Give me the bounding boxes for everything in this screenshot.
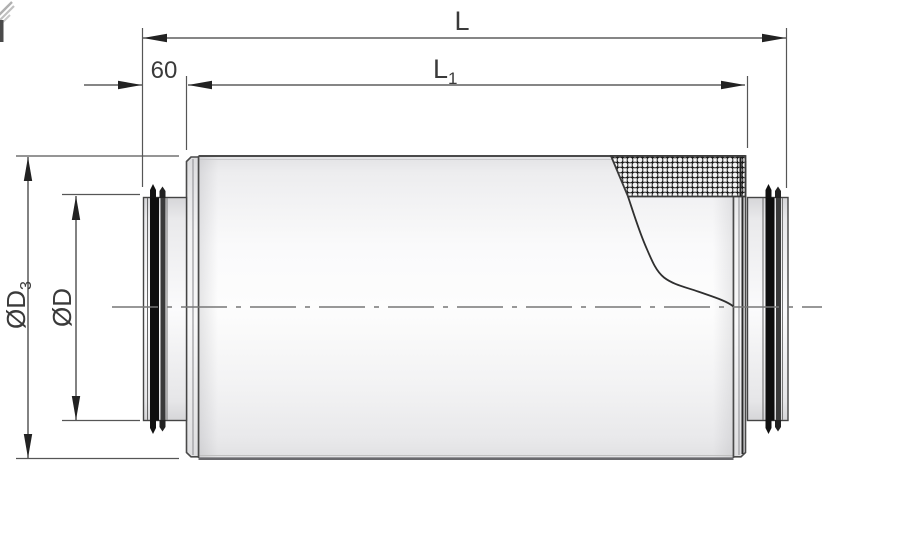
silencer-technical-drawing: L L1 60 ØD3 ØD bbox=[0, 0, 900, 536]
dimension-duct-diameter: ØD bbox=[47, 196, 80, 420]
label-outer-diameter: ØD3 bbox=[1, 281, 35, 329]
arrowhead-left-icon bbox=[188, 81, 212, 89]
label-spigot-length: 60 bbox=[151, 57, 178, 84]
right-seal-lip-bottom bbox=[766, 420, 772, 434]
arrowhead-up-icon bbox=[72, 196, 80, 220]
right-spigot bbox=[748, 184, 789, 434]
left-spigot bbox=[144, 184, 187, 434]
right-seal-lip-top bbox=[766, 184, 772, 198]
left-seal-lip-top bbox=[150, 184, 156, 198]
label-total-length: L bbox=[454, 6, 469, 36]
dimension-body-length: L1 bbox=[188, 54, 745, 89]
arrowhead-down-icon bbox=[24, 434, 32, 458]
label-duct-diameter: ØD bbox=[47, 288, 77, 327]
corner-logo-artifact bbox=[0, 2, 14, 42]
drawing-canvas: L L1 60 ØD3 ØD bbox=[0, 0, 900, 536]
left-seal-lip-bottom bbox=[150, 420, 156, 434]
dimension-total-length: L bbox=[143, 6, 786, 42]
arrowhead-up-icon bbox=[24, 157, 32, 181]
dimension-spigot-length: 60 bbox=[84, 57, 177, 89]
arrowhead-right-icon bbox=[721, 81, 745, 89]
insulation-hatch bbox=[611, 156, 746, 197]
arrowhead-right-icon bbox=[762, 34, 786, 42]
arrowhead-down-icon bbox=[72, 396, 80, 420]
dimension-outer-diameter: ØD3 bbox=[1, 157, 35, 458]
label-body-length: L1 bbox=[433, 54, 458, 88]
right-seal-band bbox=[766, 198, 775, 421]
arrowhead-left-icon bbox=[143, 34, 167, 42]
left-seal-band bbox=[150, 198, 159, 421]
arrowhead-right-icon bbox=[118, 81, 142, 89]
